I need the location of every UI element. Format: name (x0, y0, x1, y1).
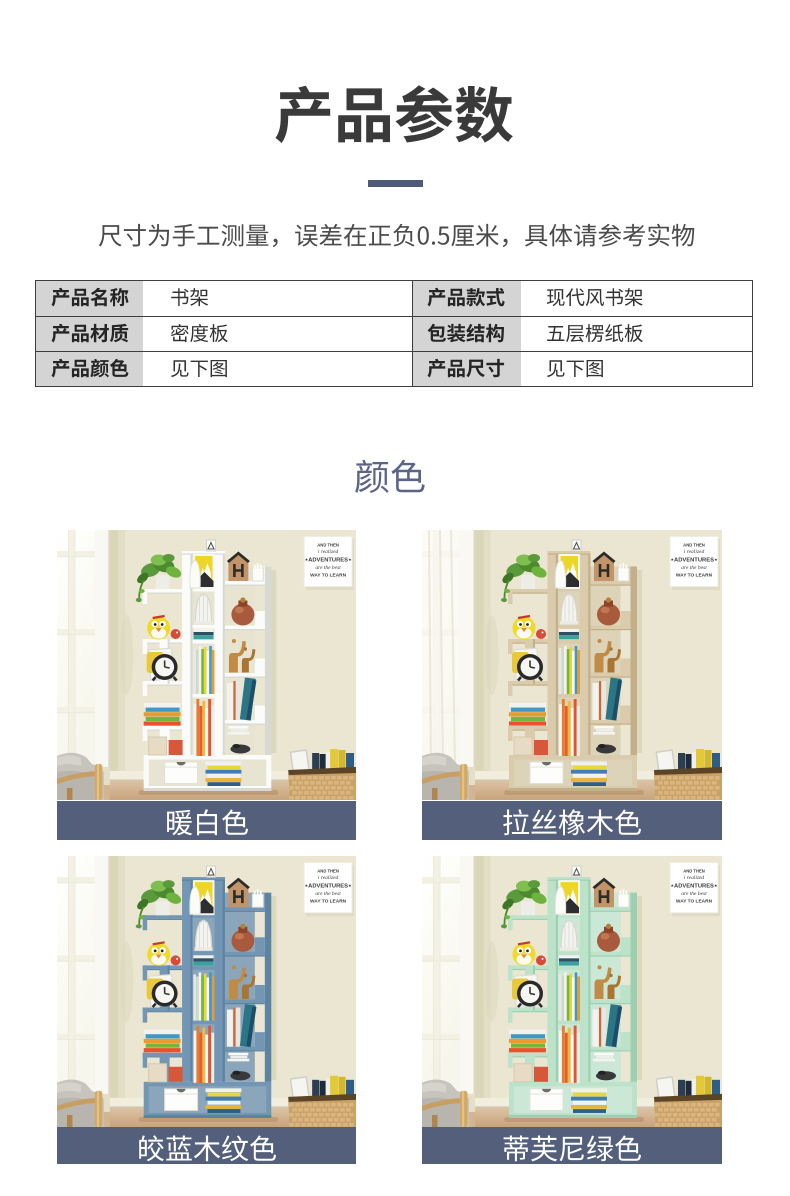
svg-text:⋆ADVENTURES⋆: ⋆ADVENTURES⋆ (305, 884, 352, 890)
svg-text:WAY TO LEARN: WAY TO LEARN (676, 899, 713, 905)
svg-text:WAY TO LEARN: WAY TO LEARN (310, 572, 347, 578)
svg-text:i realized: i realized (318, 549, 339, 555)
svg-text:⋆ADVENTURES⋆: ⋆ADVENTURES⋆ (305, 557, 352, 563)
svg-text:AND THEN: AND THEN (317, 869, 339, 874)
svg-text:AND THEN: AND THEN (317, 542, 339, 547)
svg-text:i realized: i realized (318, 875, 339, 881)
svg-text:WAY TO LEARN: WAY TO LEARN (310, 899, 347, 905)
svg-text:⋆ADVENTURES⋆: ⋆ADVENTURES⋆ (670, 884, 717, 890)
svg-text:i realized: i realized (684, 875, 705, 881)
svg-text:are the best: are the best (681, 891, 707, 897)
svg-text:AND THEN: AND THEN (683, 543, 705, 548)
svg-text:WAY TO LEARN: WAY TO LEARN (676, 573, 713, 579)
svg-text:are the best: are the best (315, 891, 341, 897)
svg-text:⋆ADVENTURES⋆: ⋆ADVENTURES⋆ (670, 558, 718, 564)
svg-text:are the best: are the best (681, 565, 707, 571)
svg-text:AND THEN: AND THEN (683, 869, 705, 874)
svg-text:are the best: are the best (315, 565, 341, 571)
svg-text:i realized: i realized (684, 549, 705, 555)
